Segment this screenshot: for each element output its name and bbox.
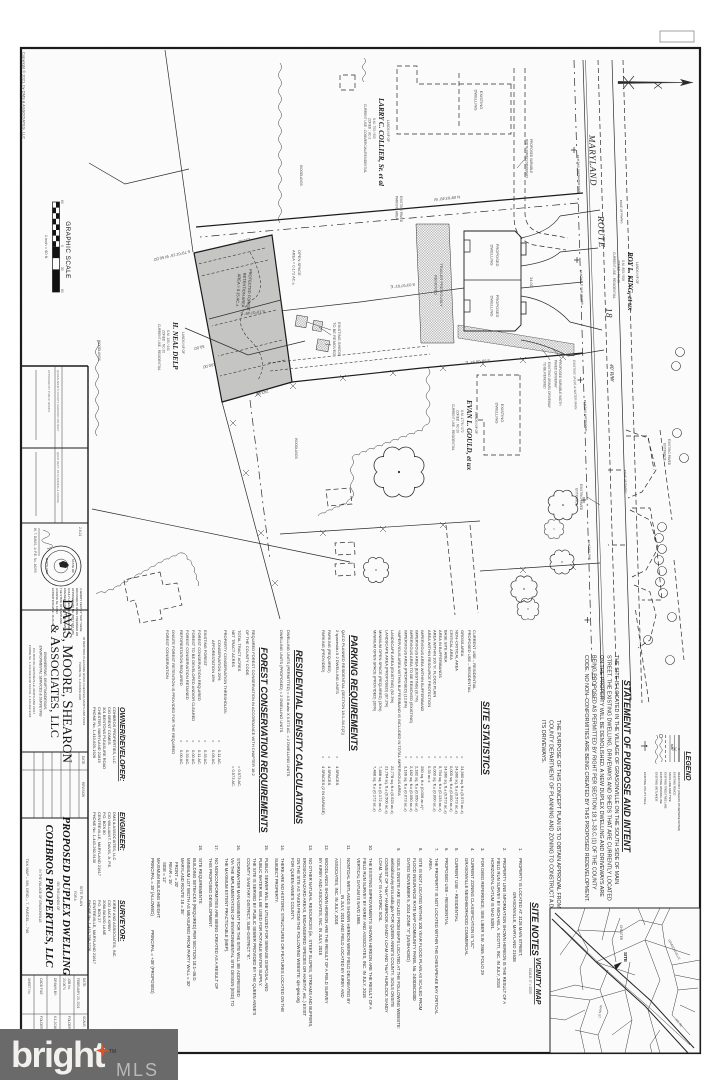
svg-text:TM: TM: [109, 1049, 116, 1055]
